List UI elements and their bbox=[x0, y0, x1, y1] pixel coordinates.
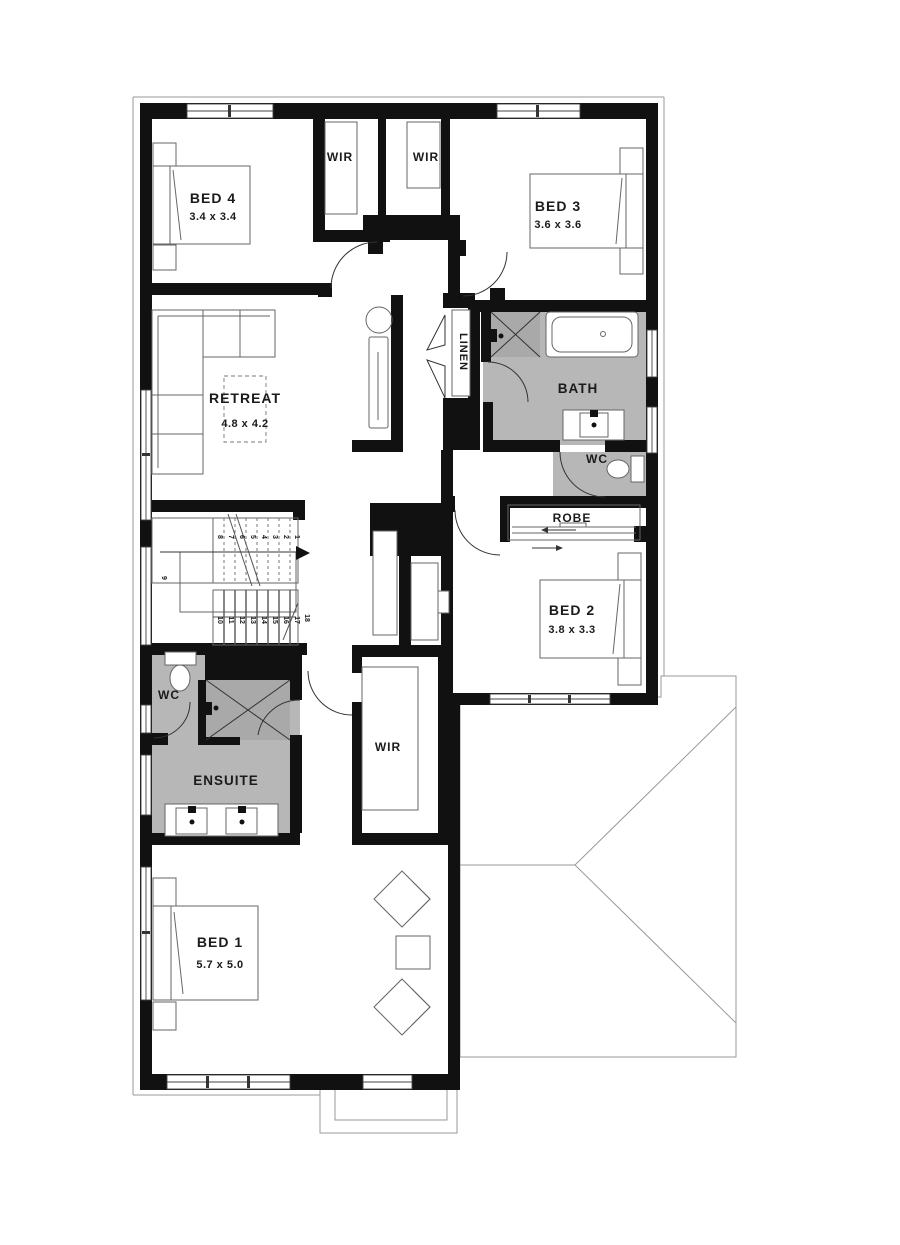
bed3-label: BED 3 bbox=[535, 198, 581, 214]
shower-head bbox=[206, 702, 212, 715]
shower-head bbox=[491, 329, 497, 342]
bath-vanity bbox=[563, 410, 624, 440]
robe-label: ROBE bbox=[553, 511, 592, 525]
bed4-furniture bbox=[153, 143, 250, 270]
bed2-furniture bbox=[540, 553, 641, 685]
bedside-table bbox=[618, 658, 641, 685]
bedside-table bbox=[153, 245, 176, 270]
roof-outline bbox=[460, 676, 736, 1057]
window-stairs-left bbox=[141, 547, 151, 645]
stair-landing bbox=[152, 518, 213, 583]
linen-door-arrow bbox=[427, 360, 445, 398]
window-ensuite-left bbox=[141, 755, 151, 815]
stair-number: 4 bbox=[260, 535, 267, 539]
furniture bbox=[152, 122, 644, 1035]
wc-ensuite-label: WC bbox=[158, 688, 180, 702]
bed1-dims: 5.7 x 5.0 bbox=[196, 959, 243, 971]
side-table bbox=[396, 936, 430, 969]
wir-left-shelf bbox=[325, 122, 357, 214]
window-retreat-left bbox=[141, 390, 151, 520]
bedside-table bbox=[618, 553, 641, 580]
staircase: 8 7 6 5 4 3 2 1 9 10 11 12 13 14 15 16 1… bbox=[152, 514, 310, 645]
window-wcbath-right bbox=[647, 407, 657, 453]
window-sitting-bottom bbox=[363, 1075, 412, 1089]
bedside-table bbox=[620, 248, 643, 274]
stair-number: 1 bbox=[293, 535, 300, 539]
window-bed2-bottom bbox=[490, 694, 610, 704]
window-bed3-top bbox=[497, 104, 580, 118]
window-bed1-bottom bbox=[167, 1075, 290, 1089]
bed2-door-arc bbox=[455, 510, 500, 555]
bedside-table bbox=[620, 148, 643, 174]
wir-top-left-label: WIR bbox=[327, 150, 353, 164]
bedside-table bbox=[153, 143, 176, 166]
stair-number: 12 bbox=[238, 616, 245, 624]
stair-number: 6 bbox=[238, 535, 245, 539]
wir-top-right-label: WIR bbox=[413, 150, 439, 164]
floor-plan: 8 7 6 5 4 3 2 1 9 10 11 12 13 14 15 16 1… bbox=[0, 0, 900, 1245]
retreat-label: RETREAT bbox=[209, 390, 281, 406]
wc-bath-label: WC bbox=[586, 452, 608, 466]
linen-door-arrow bbox=[427, 315, 445, 350]
bathtub bbox=[546, 312, 638, 357]
window-bed4-top bbox=[187, 104, 273, 118]
ensuite-label: ENSUITE bbox=[193, 773, 259, 788]
stair-number: 11 bbox=[227, 616, 234, 624]
window-bath-right bbox=[647, 330, 657, 377]
stair-number: 10 bbox=[216, 616, 223, 624]
bed1-label: BED 1 bbox=[197, 934, 243, 950]
bed2-dims: 3.8 x 3.3 bbox=[548, 624, 595, 636]
stair-number: 2 bbox=[282, 535, 289, 539]
hall-console bbox=[366, 307, 392, 428]
stair-direction-arrow bbox=[296, 546, 310, 560]
window-wc-left bbox=[141, 705, 151, 733]
slide-arrow-right bbox=[556, 545, 563, 551]
window-bed1-left bbox=[141, 867, 151, 1000]
retreat-label-bracket bbox=[224, 376, 266, 442]
bed4-dims: 3.4 x 3.4 bbox=[189, 211, 237, 223]
stair-number: 15 bbox=[271, 616, 278, 624]
bed3-dims: 3.6 x 3.6 bbox=[534, 219, 581, 231]
stair-number: 17 bbox=[293, 616, 300, 624]
stair-number: 13 bbox=[249, 616, 256, 624]
bed bbox=[153, 906, 258, 1000]
floor-plan-svg: 8 7 6 5 4 3 2 1 9 10 11 12 13 14 15 16 1… bbox=[0, 0, 900, 1245]
decor-circle bbox=[366, 307, 392, 333]
slide-arrow-left bbox=[541, 527, 548, 533]
chair bbox=[374, 979, 430, 1035]
stair-number: 8 bbox=[216, 535, 223, 539]
wir-master-door-arc bbox=[308, 671, 352, 715]
stair-number: 3 bbox=[271, 535, 278, 539]
stair-upper-treads bbox=[224, 518, 290, 583]
bed1-furniture bbox=[153, 878, 258, 1030]
bed2-label: BED 2 bbox=[549, 602, 595, 618]
wir-master-shelf bbox=[362, 667, 418, 810]
stair-number: 14 bbox=[260, 616, 267, 624]
stair-number-landing: 9 bbox=[160, 576, 167, 580]
stair-number: 7 bbox=[227, 535, 234, 539]
wir-master-label: WIR bbox=[375, 740, 401, 754]
bed bbox=[540, 580, 641, 658]
sitting-area bbox=[374, 871, 430, 1035]
chair bbox=[374, 871, 430, 927]
bedside-table bbox=[153, 1002, 176, 1030]
bedside-table bbox=[153, 878, 176, 906]
stair-number: 5 bbox=[249, 535, 256, 539]
bath-label: BATH bbox=[558, 381, 599, 396]
stair-number-last: 18 bbox=[303, 614, 310, 622]
ensuite-vanity bbox=[165, 804, 278, 836]
retreat-dims: 4.8 x 4.2 bbox=[221, 418, 268, 430]
stair-number: 16 bbox=[282, 616, 289, 624]
bed4-label: BED 4 bbox=[190, 190, 236, 206]
linen-label: LINEN bbox=[457, 333, 469, 371]
